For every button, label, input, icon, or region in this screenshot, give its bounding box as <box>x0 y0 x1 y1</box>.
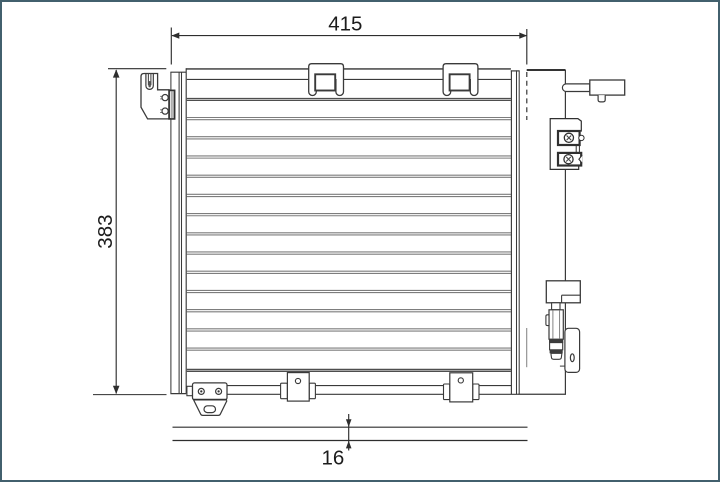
svg-text:16: 16 <box>321 446 344 469</box>
svg-text:383: 383 <box>94 214 117 248</box>
svg-text:415: 415 <box>328 13 362 36</box>
